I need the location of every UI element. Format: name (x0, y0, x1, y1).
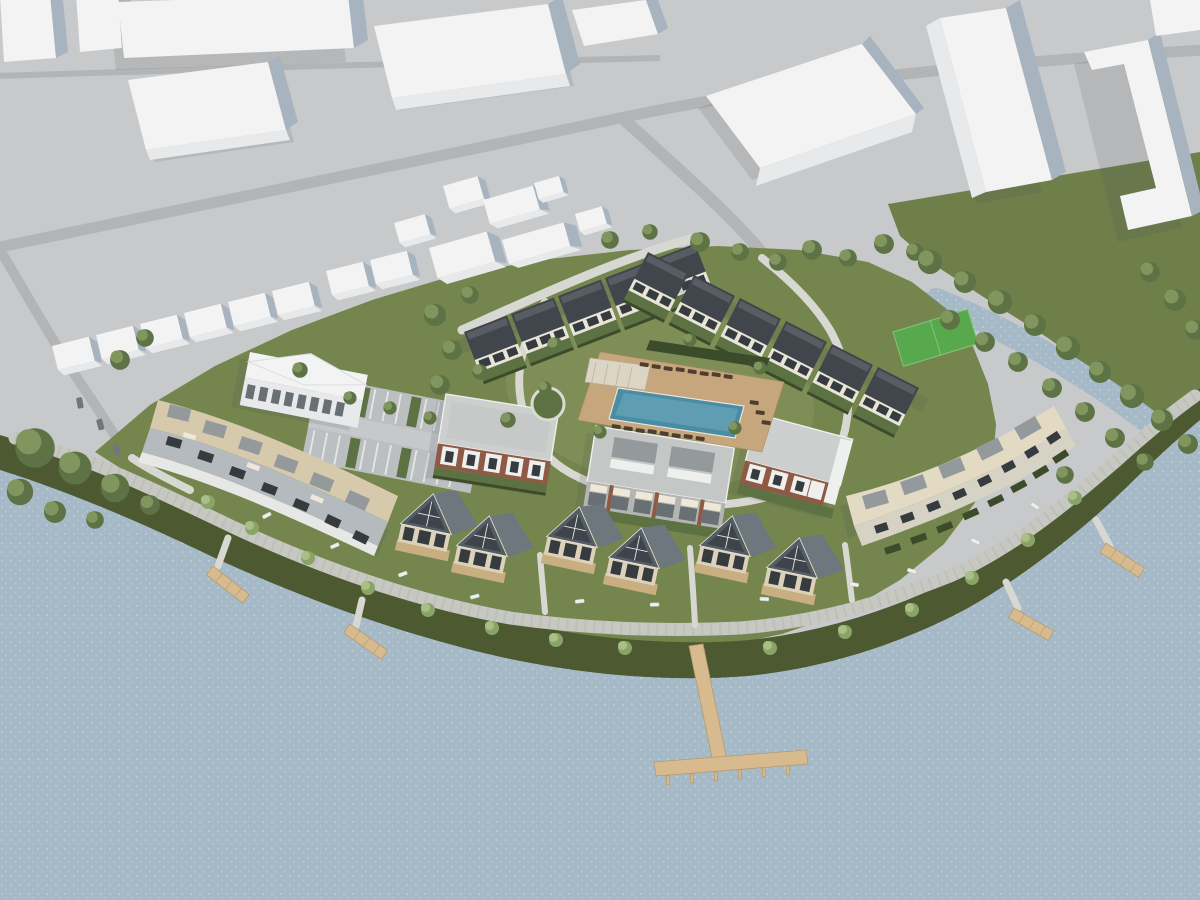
tree (601, 231, 619, 249)
street-tree (421, 603, 435, 617)
tree (1151, 409, 1173, 431)
tree (839, 249, 857, 267)
tree (988, 290, 1012, 314)
tree (423, 411, 436, 424)
tree (1056, 466, 1074, 484)
tree (383, 401, 396, 414)
tree (292, 362, 307, 377)
tree (753, 361, 766, 374)
aerial-render (0, 0, 1200, 900)
tree (1089, 361, 1111, 383)
tree (461, 286, 479, 304)
tree (954, 271, 976, 293)
tree (101, 474, 130, 503)
street-tree (838, 625, 852, 639)
tree (1164, 289, 1186, 311)
tree (690, 232, 710, 252)
tree (430, 375, 450, 395)
street-tree (763, 641, 777, 655)
tree (1042, 378, 1062, 398)
tree (136, 329, 154, 347)
tree (538, 381, 551, 394)
render-viewport: Aerial 3D visualization of a waterfront … (0, 0, 1200, 900)
tree (728, 421, 741, 434)
tree (343, 391, 356, 404)
street-tree (301, 551, 315, 565)
tree (918, 250, 942, 274)
street-tree (905, 603, 919, 617)
tree (874, 234, 894, 254)
tree (86, 511, 104, 529)
tree (1024, 314, 1046, 336)
bench (575, 599, 584, 603)
tree (500, 412, 515, 427)
street-tree (485, 621, 499, 635)
tree (802, 240, 822, 260)
bench (650, 603, 659, 607)
tree (1136, 453, 1154, 471)
tree (1120, 384, 1144, 408)
street-tree (1021, 533, 1035, 547)
tree (442, 340, 462, 360)
tree (472, 364, 487, 379)
tree (547, 337, 562, 352)
tree (1178, 434, 1198, 454)
tree (1008, 352, 1028, 372)
tree (940, 310, 960, 330)
tree (7, 479, 33, 505)
tree (731, 243, 749, 261)
street-tree (361, 581, 375, 595)
tree (975, 332, 995, 352)
tree (1075, 402, 1095, 422)
context-building (1150, 0, 1200, 36)
street-tree (965, 571, 979, 585)
tree (642, 224, 657, 239)
street-tree (245, 521, 259, 535)
street-tree (201, 495, 215, 509)
tree (140, 495, 160, 515)
street-tree (1068, 491, 1082, 505)
tree (769, 253, 787, 271)
tree (593, 425, 606, 438)
street-tree (549, 633, 563, 647)
tree (1105, 428, 1125, 448)
tree (1140, 262, 1160, 282)
tree (59, 452, 92, 485)
tree (424, 304, 446, 326)
tree (1056, 336, 1080, 360)
tree (110, 350, 130, 370)
street-tree (618, 641, 632, 655)
tree (15, 428, 55, 468)
context-building (0, 0, 68, 62)
tree (683, 333, 696, 346)
bench (760, 597, 769, 601)
tree (44, 501, 66, 523)
